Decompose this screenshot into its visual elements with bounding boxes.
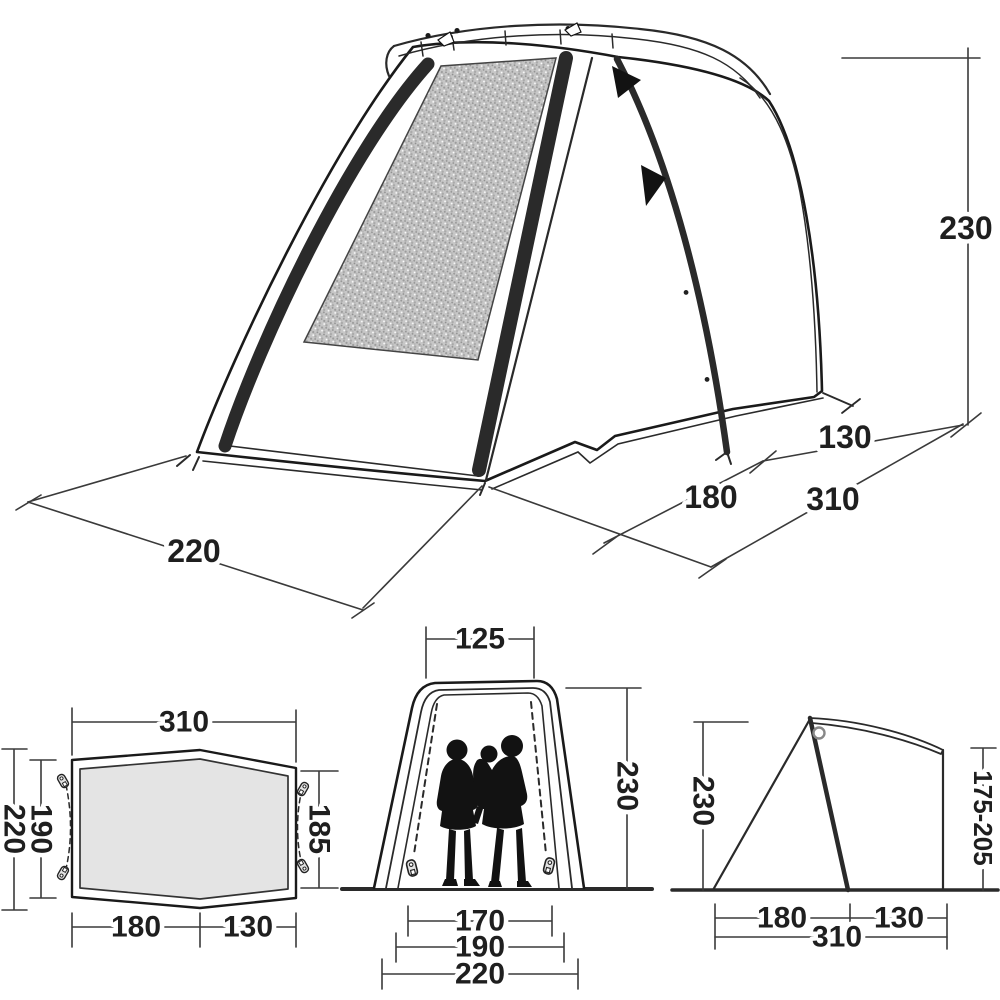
dimension-roof-width: 125 [426,623,534,679]
person-head [447,740,468,761]
dimension-label: 310 [159,706,209,739]
perspective-view: 220 180 130 310 230 [16,23,993,618]
dimension-front-depth: 180 [593,451,776,554]
side-view: 230 175-205 180 130 310 [672,718,998,954]
front-pole-line [810,718,848,890]
rear-guy-line [823,393,860,413]
peg-icon [296,858,309,874]
dimension-label: 130 [818,419,871,455]
groundsheet [80,759,288,899]
peg-icon [296,781,309,797]
front-view: 125 230 170 190 220 [342,623,652,991]
guy-line-dashed-right [298,789,303,865]
dimension-height: 230 [842,48,993,425]
dimension-label: 230 [939,210,992,246]
peg-icon [56,865,69,881]
dimension-inner-length: 190 [25,760,58,898]
dimension-label: 190 [25,804,58,854]
tent-dimensions-page: 220 180 130 310 230 310 [0,0,1000,1000]
dimension-label: 130 [874,902,924,935]
dimension-label: 310 [806,481,859,517]
floor-plan-view: 310 220 190 185 180 130 [0,706,338,948]
peg-icon [56,773,69,789]
dimension-label: 310 [812,921,862,954]
dimension-attachment-height: 175-205 [968,748,998,890]
dimension-bottom-sections: 180 130 [72,911,296,948]
dimension-label: 185 [303,804,336,854]
attachment-ring-icon [814,728,825,739]
dimension-label: 230 [611,761,644,811]
dimension-label: 230 [687,776,720,826]
dimension-label: 125 [455,623,505,656]
guy-line-dashed-left [66,785,71,869]
dimension-label: 220 [455,958,505,991]
dimension-label: 130 [223,911,273,944]
dimension-height: 230 [687,722,749,890]
rear-slope-line [713,719,810,890]
dimension-outer-width: 220 [382,958,578,991]
dimension-label: 180 [684,479,737,515]
dimension-label: 180 [757,902,807,935]
dimension-front-width: 220 [16,495,374,618]
dimension-rear-depth: 130 [763,419,963,461]
person-head [501,735,523,757]
tent-dimensions-diagram: 220 180 130 310 230 310 [0,0,1000,1000]
dimension-label: 180 [111,911,161,944]
dimension-label: 220 [167,533,220,569]
awning-roof-curves [810,718,943,754]
dimension-label: 175-205 [968,770,998,865]
